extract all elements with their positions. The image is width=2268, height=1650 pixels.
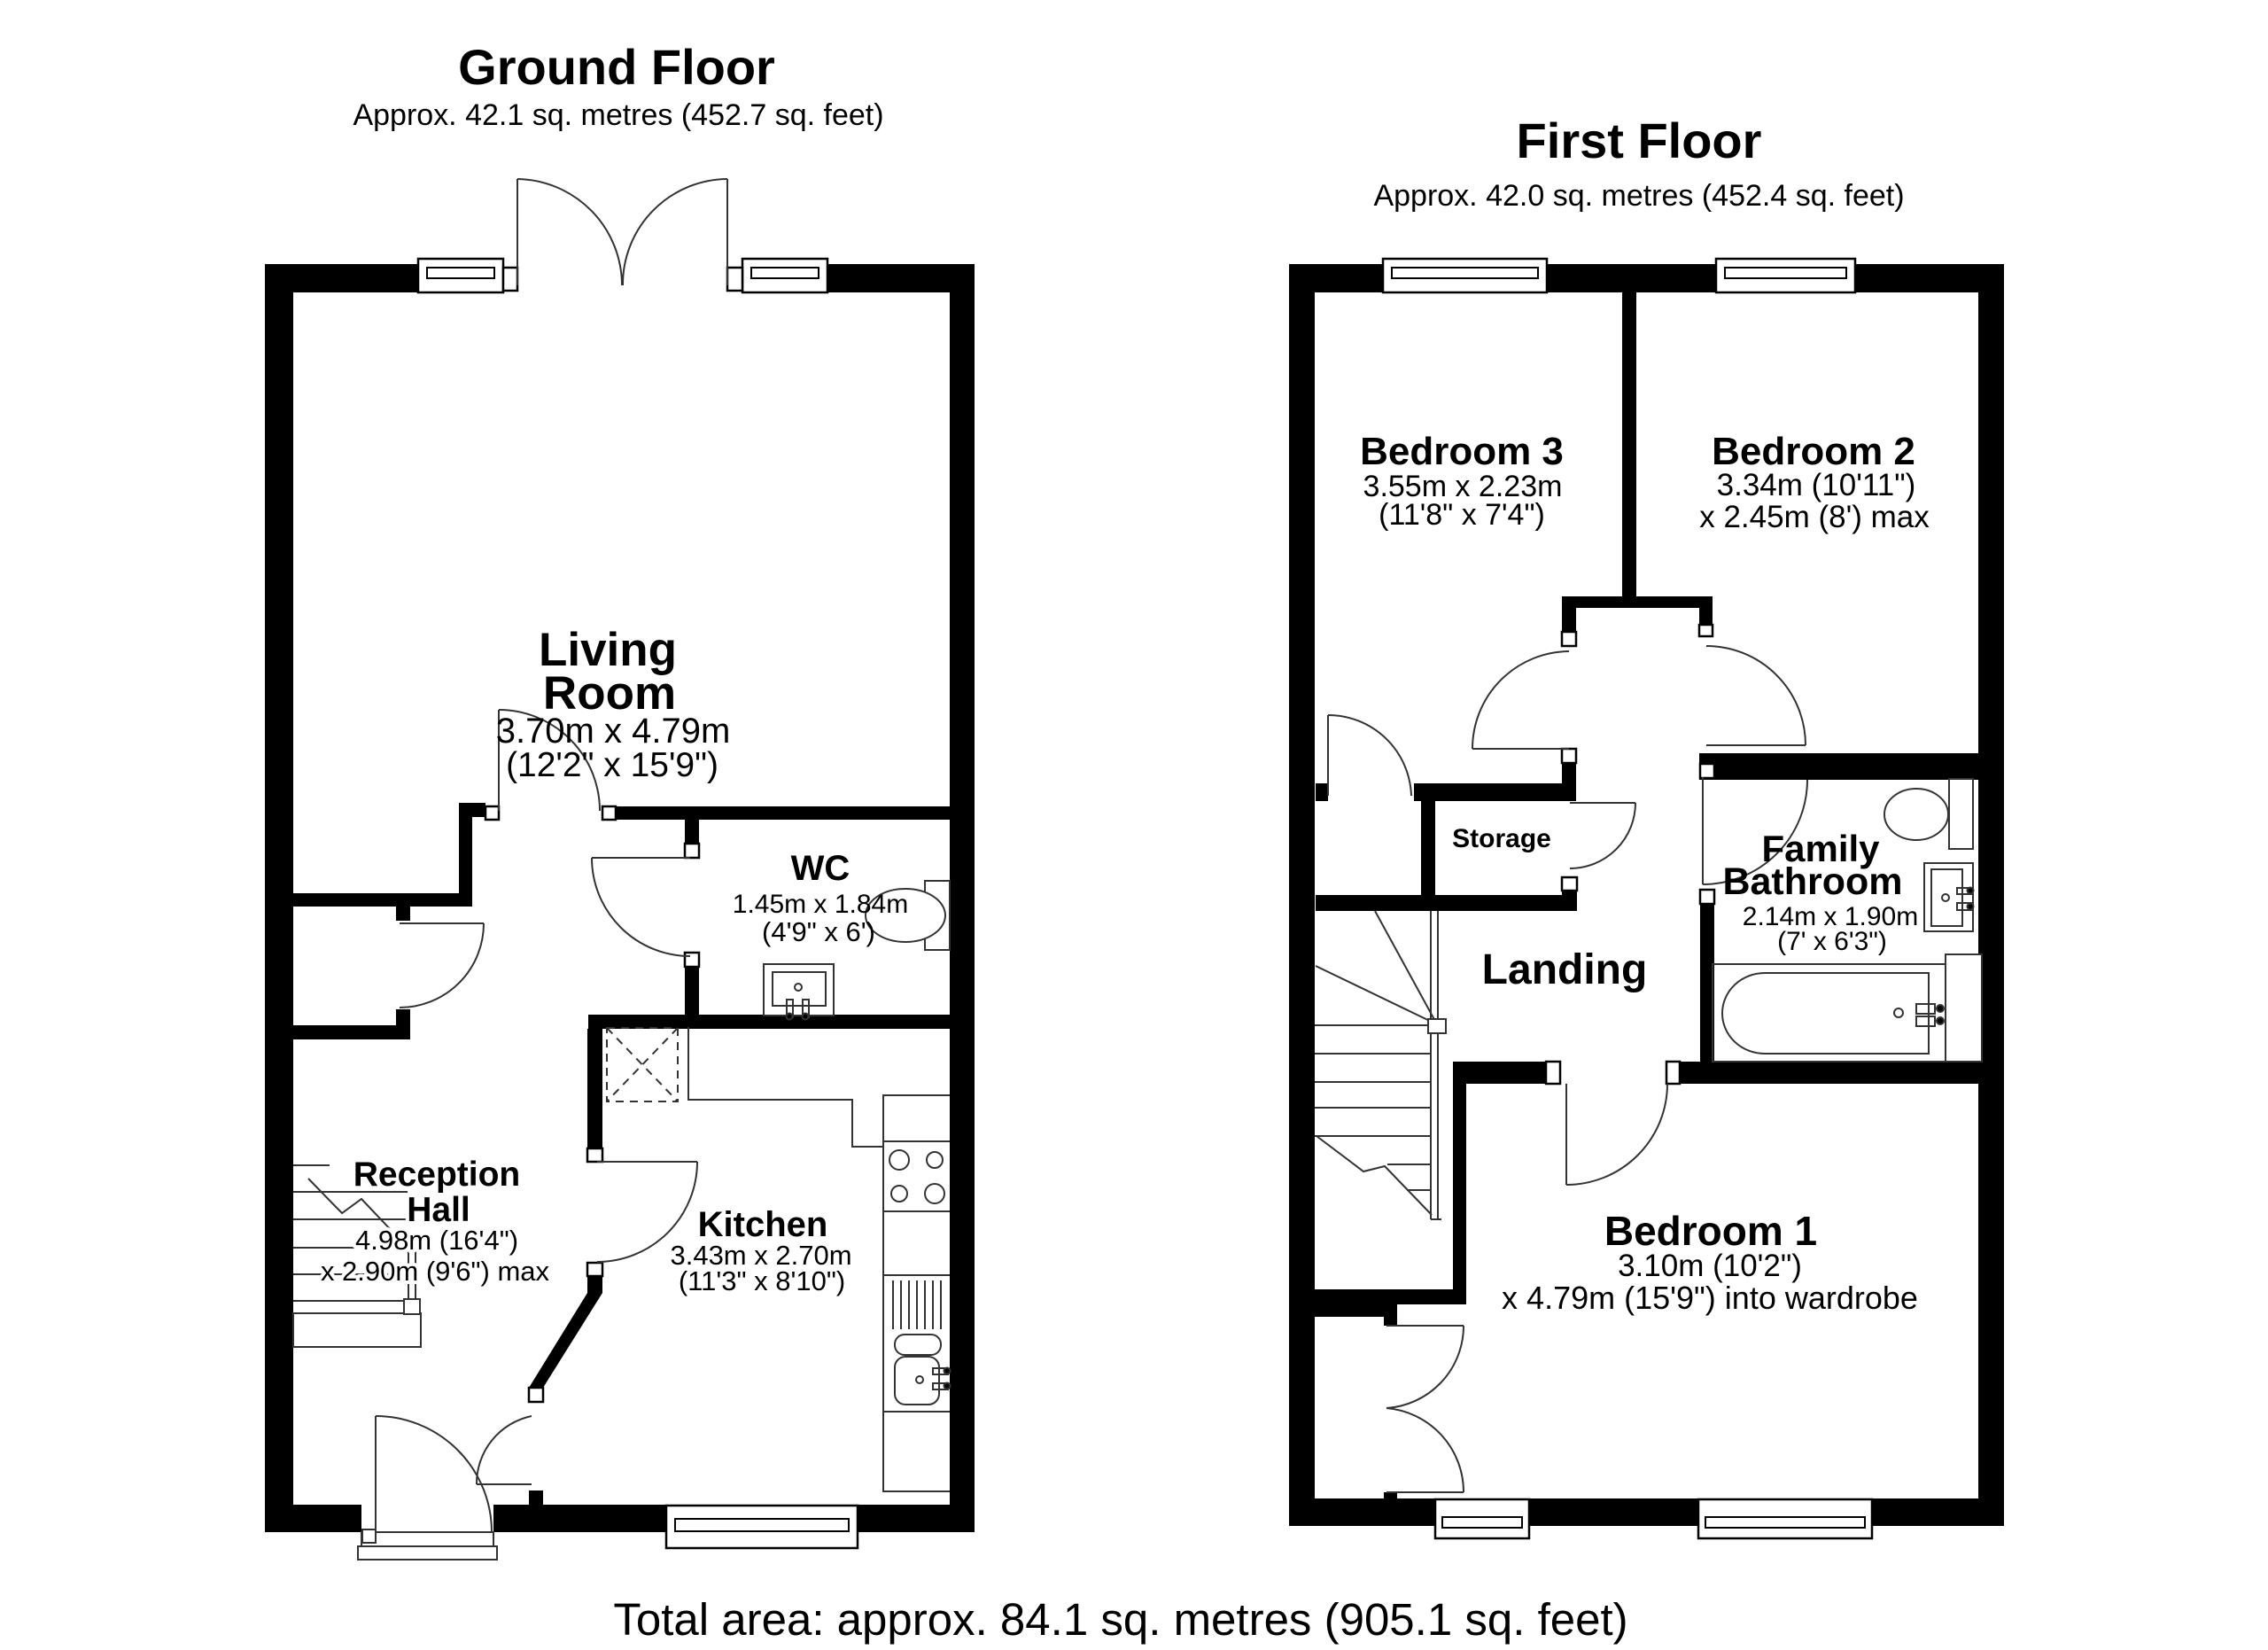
svg-text:Bathroom: Bathroom xyxy=(1722,860,1902,903)
svg-text:4.98m (16'4"): 4.98m (16'4") xyxy=(355,1225,518,1256)
svg-text:(11'8" x 7'4"): (11'8" x 7'4") xyxy=(1379,498,1545,532)
svg-text:(4'9" x 6'): (4'9" x 6') xyxy=(762,916,875,947)
svg-text:(11'3" x 8'10"): (11'3" x 8'10") xyxy=(679,1265,845,1296)
svg-text:Approx. 42.1 sq. metres (452.7: Approx. 42.1 sq. metres (452.7 sq. feet) xyxy=(353,98,883,132)
svg-text:3.10m (10'2"): 3.10m (10'2") xyxy=(1618,1249,1802,1283)
svg-text:x 4.79m (15'9") into wardrobe: x 4.79m (15'9") into wardrobe xyxy=(1502,1280,1918,1316)
svg-text:x 2.90m (9'6") max: x 2.90m (9'6") max xyxy=(321,1256,550,1287)
svg-text:3.34m (10'11"): 3.34m (10'11") xyxy=(1717,468,1916,502)
svg-text:Ground Floor: Ground Floor xyxy=(458,39,775,95)
svg-text:Bedroom 3: Bedroom 3 xyxy=(1360,430,1564,473)
svg-text:First Floor: First Floor xyxy=(1517,113,1762,168)
svg-text:Landing: Landing xyxy=(1482,946,1648,993)
svg-text:WC: WC xyxy=(791,849,850,888)
svg-text:Hall: Hall xyxy=(407,1191,470,1229)
svg-text:(12'2" x 15'9"): (12'2" x 15'9") xyxy=(506,746,718,784)
svg-text:Kitchen: Kitchen xyxy=(698,1205,828,1244)
svg-text:(7' x 6'3"): (7' x 6'3") xyxy=(1777,927,1887,956)
svg-text:x 2.45m (8') max: x 2.45m (8') max xyxy=(1699,500,1930,534)
svg-text:Reception: Reception xyxy=(353,1156,521,1194)
svg-text:Bedroom 2: Bedroom 2 xyxy=(1712,430,1915,473)
svg-text:Storage: Storage xyxy=(1452,824,1551,853)
svg-text:Total area: approx. 84.1 sq. m: Total area: approx. 84.1 sq. metres (905… xyxy=(613,1594,1627,1645)
svg-text:3.70m x 4.79m: 3.70m x 4.79m xyxy=(496,712,731,751)
svg-text:1.45m x 1.84m: 1.45m x 1.84m xyxy=(733,890,908,919)
svg-text:Approx. 42.0 sq. metres (452.4: Approx. 42.0 sq. metres (452.4 sq. feet) xyxy=(1373,179,1904,213)
svg-text:Bedroom 1: Bedroom 1 xyxy=(1604,1208,1817,1254)
